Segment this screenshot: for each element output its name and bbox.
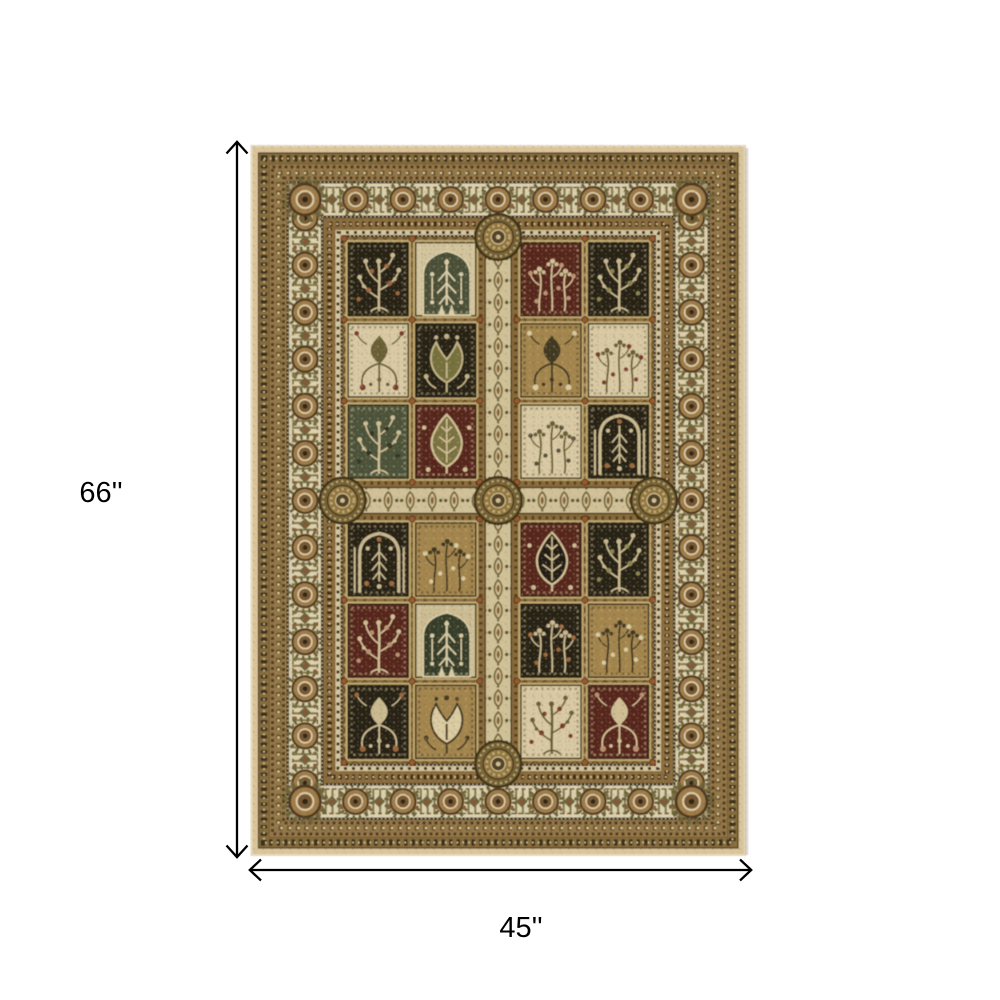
svg-text:45'': 45'' — [499, 912, 542, 944]
svg-text:66'': 66'' — [79, 477, 122, 509]
